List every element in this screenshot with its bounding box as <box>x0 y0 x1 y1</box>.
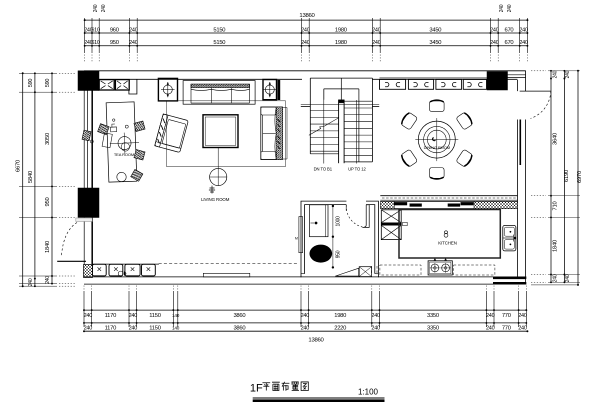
svg-text:LIVING ROOM: LIVING ROOM <box>201 197 230 202</box>
svg-text:13860: 13860 <box>299 13 315 19</box>
svg-text:950: 950 <box>335 250 341 258</box>
svg-text:610: 610 <box>91 40 100 46</box>
svg-text:240: 240 <box>129 326 138 332</box>
svg-text:240: 240 <box>129 27 138 33</box>
svg-text:240: 240 <box>101 4 107 12</box>
svg-text:1840: 1840 <box>45 241 51 253</box>
svg-text:240: 240 <box>301 27 310 33</box>
svg-text:M: M <box>295 237 298 241</box>
svg-text:240: 240 <box>301 326 310 332</box>
svg-text:DINING ROOM: DINING ROOM <box>424 145 450 150</box>
svg-text:240: 240 <box>371 326 380 332</box>
svg-text:240: 240 <box>553 274 559 282</box>
svg-text:1F: 1F <box>250 382 263 394</box>
svg-text:950: 950 <box>45 198 51 207</box>
svg-text:240: 240 <box>372 40 381 46</box>
svg-text:5150: 5150 <box>213 40 225 46</box>
svg-text:240: 240 <box>553 70 559 78</box>
svg-text:140: 140 <box>172 326 180 331</box>
svg-text:240: 240 <box>84 326 93 332</box>
svg-text:610: 610 <box>91 27 100 33</box>
svg-text:3350: 3350 <box>427 313 439 319</box>
svg-text:240: 240 <box>45 276 51 284</box>
svg-text:5150: 5150 <box>213 27 225 33</box>
svg-text:240: 240 <box>371 313 380 319</box>
svg-text:240: 240 <box>499 4 505 12</box>
svg-text:5840: 5840 <box>28 171 34 183</box>
svg-text:DN TO B1: DN TO B1 <box>314 167 333 172</box>
svg-text:670: 670 <box>504 40 513 46</box>
svg-text:3860: 3860 <box>233 326 245 332</box>
svg-text:240: 240 <box>301 313 310 319</box>
svg-text:6970: 6970 <box>577 171 583 183</box>
svg-text:1980: 1980 <box>335 27 347 33</box>
svg-text:240: 240 <box>565 274 571 282</box>
svg-text:240: 240 <box>486 326 495 332</box>
svg-text:140: 140 <box>172 313 180 318</box>
svg-text:670: 670 <box>504 27 513 33</box>
svg-text:240: 240 <box>301 40 310 46</box>
svg-text:3050: 3050 <box>45 133 51 145</box>
svg-text:1150: 1150 <box>149 326 160 332</box>
svg-text:TEA ROOM: TEA ROOM <box>114 152 134 157</box>
svg-text:240: 240 <box>129 313 138 319</box>
svg-text:240: 240 <box>490 40 499 46</box>
svg-text:3860: 3860 <box>233 313 245 319</box>
svg-text:1:100: 1:100 <box>358 388 379 397</box>
svg-text:710: 710 <box>553 202 559 211</box>
svg-text:240: 240 <box>84 313 93 319</box>
svg-text:240: 240 <box>372 27 381 33</box>
svg-text:240: 240 <box>507 4 513 12</box>
svg-text:240: 240 <box>93 4 99 12</box>
svg-text:590: 590 <box>28 79 34 88</box>
svg-text:240: 240 <box>565 70 571 78</box>
svg-text:3350: 3350 <box>427 326 439 332</box>
svg-text:240: 240 <box>28 278 34 286</box>
svg-text:UP TO 12: UP TO 12 <box>348 167 366 172</box>
svg-text:1170: 1170 <box>105 326 116 332</box>
svg-text:240: 240 <box>490 27 499 33</box>
svg-text:1840: 1840 <box>553 240 559 252</box>
svg-text:240: 240 <box>518 326 527 332</box>
svg-text:240: 240 <box>518 313 527 319</box>
svg-text:240: 240 <box>129 40 138 46</box>
svg-text:1980: 1980 <box>335 40 347 46</box>
svg-text:3640: 3640 <box>553 133 559 145</box>
svg-text:1150: 1150 <box>149 313 160 319</box>
svg-text:590: 590 <box>45 79 51 88</box>
svg-text:240: 240 <box>519 40 528 46</box>
svg-text:1170: 1170 <box>105 313 116 319</box>
svg-text:KITCHEN: KITCHEN <box>438 240 457 245</box>
svg-text:3450: 3450 <box>429 27 441 33</box>
svg-text:3450: 3450 <box>429 40 441 46</box>
svg-text:960: 960 <box>110 27 119 33</box>
svg-text:770: 770 <box>502 326 511 332</box>
svg-text:13860: 13860 <box>308 337 324 343</box>
svg-text:2220: 2220 <box>334 326 346 332</box>
svg-text:6190: 6190 <box>564 170 570 182</box>
svg-text:1980: 1980 <box>334 313 346 319</box>
svg-text:240: 240 <box>486 313 495 319</box>
svg-text:240: 240 <box>519 27 528 33</box>
svg-text:1000: 1000 <box>335 216 341 227</box>
svg-text:950: 950 <box>110 40 119 46</box>
svg-text:770: 770 <box>502 313 511 319</box>
svg-text:6670: 6670 <box>16 160 22 172</box>
